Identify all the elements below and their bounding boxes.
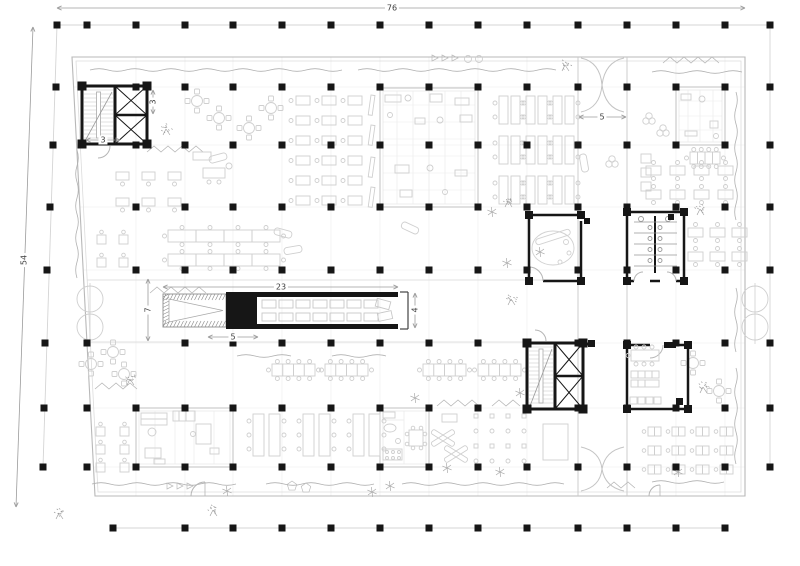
entrance-doors — [581, 58, 624, 491]
door-swings — [191, 482, 660, 496]
floor-plan-drawing — [0, 0, 800, 566]
bridge-walkway — [163, 292, 408, 329]
floor-plan: 76 54 23 7 5 4 5 3 3 — [0, 0, 800, 566]
stair-core-south — [523, 330, 596, 414]
meeting-room — [525, 211, 590, 285]
dim-elevator-width: 3 — [149, 97, 158, 106]
dim-bridge-length: 23 — [274, 283, 288, 292]
dim-bridge-width: 4 — [411, 305, 420, 314]
dim-atrium-gap: 5 — [597, 113, 606, 122]
planting — [54, 60, 709, 519]
dim-bridge-bay-depth: 7 — [144, 305, 153, 314]
dim-overall-width: 76 — [385, 4, 399, 13]
dim-stair-width: 3 — [98, 136, 107, 145]
dim-overall-depth: 54 — [20, 253, 29, 267]
landscaping-trees — [77, 283, 768, 344]
stair-core-northwest — [78, 82, 152, 159]
breakout-room — [623, 341, 692, 413]
dim-escalator-length: 5 — [228, 333, 237, 342]
